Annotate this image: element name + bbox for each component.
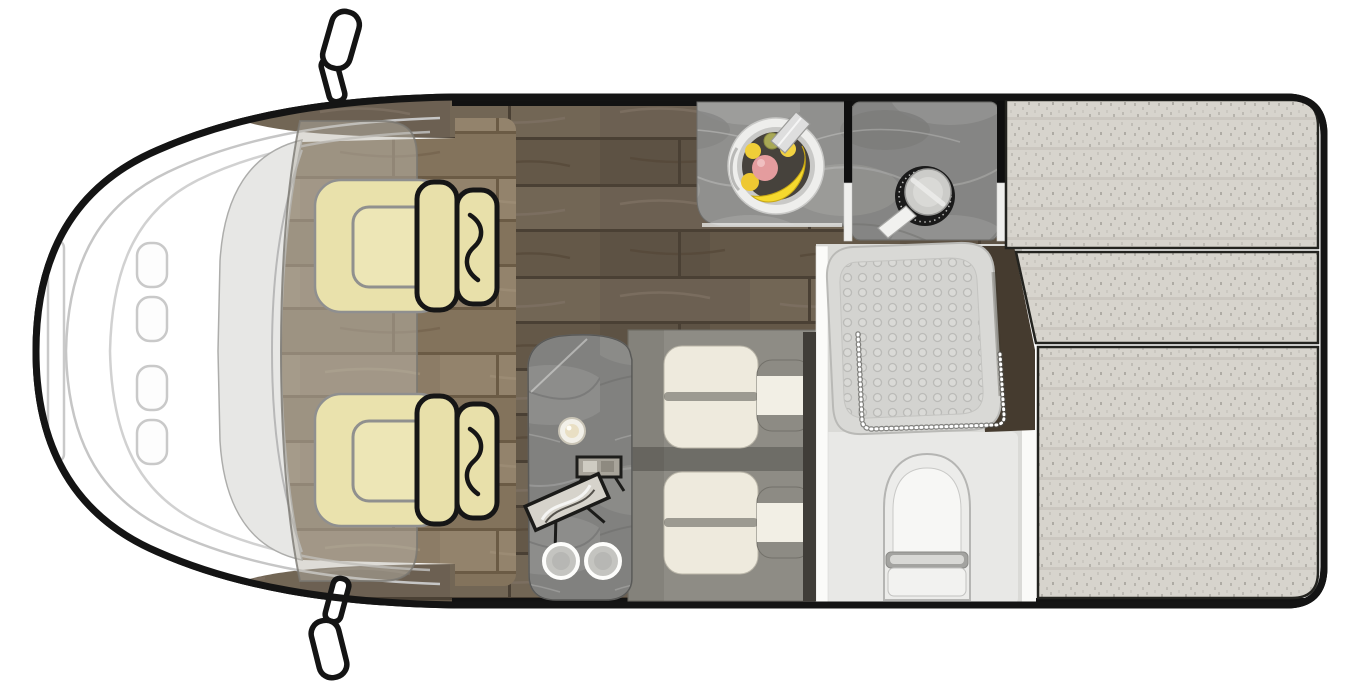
kitchen [697,99,1005,241]
interior [36,97,1318,607]
lemon [745,143,761,159]
bench-bolster-bottom [757,487,811,558]
dinette-benches [628,330,818,601]
floorplan-svg [0,0,1348,692]
rear-bed [1006,100,1318,598]
kitchen-wall-black-left [844,99,852,183]
bathroom-wall-white-right [1022,420,1036,604]
bench-bolster-top [757,360,811,431]
bathroom-wall-white-left [816,246,828,604]
toilet-step [888,568,966,596]
driver-seat [315,180,497,312]
top-side-mirror [320,8,363,103]
bench-cushion-bottom [664,472,758,574]
kitchen-wall-white-left [844,183,852,241]
bench-cushion-top [664,346,758,448]
motorhome-floorplan [0,0,1348,692]
bed-cushion-top [1006,100,1318,248]
bathroom [803,243,1036,606]
side-table [525,335,632,600]
apple [752,155,778,181]
kitchen-wall-black-right [997,99,1005,183]
counter-edge-highlight [702,223,842,227]
bed-cushion-middle [1016,252,1318,343]
toilet [884,454,970,600]
shower-tray [827,243,1001,434]
seat-backrest [417,182,457,310]
passenger-seat [315,394,497,526]
bench-divider-shadow [628,447,818,471]
kitchen-wall-white-right [997,183,1005,241]
bathroom-divider-dark [803,332,816,601]
bed-mattress-main [1038,347,1318,598]
